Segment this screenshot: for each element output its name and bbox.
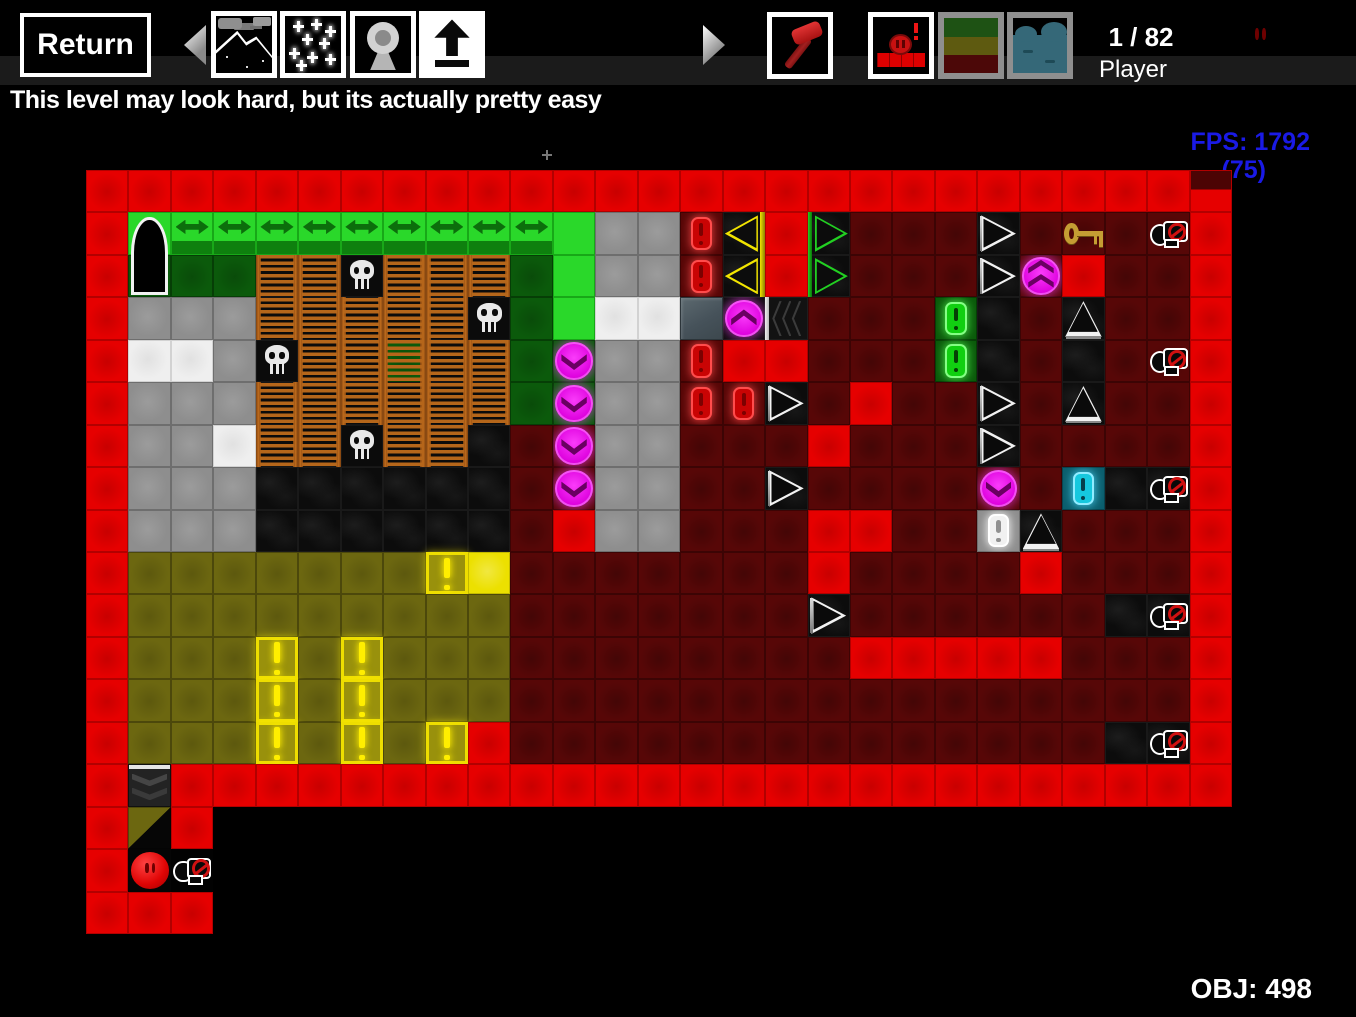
tile-red-block[interactable] xyxy=(553,170,595,212)
tile-dark-red-block[interactable] xyxy=(553,722,595,764)
tile-red-block[interactable] xyxy=(1190,425,1232,467)
tile-dark-red-block[interactable] xyxy=(808,722,850,764)
tile-red-block[interactable] xyxy=(1190,297,1232,339)
tile-white-block[interactable] xyxy=(171,340,213,382)
tile-white-block[interactable] xyxy=(595,297,637,339)
tile-olive-block[interactable] xyxy=(256,594,298,636)
tile-gray-block[interactable] xyxy=(128,425,170,467)
tile-dark-red-block[interactable] xyxy=(680,510,722,552)
tile-olive-block[interactable] xyxy=(426,594,468,636)
tile-ripple-door[interactable] xyxy=(765,297,807,339)
tile-ladder[interactable] xyxy=(256,425,298,467)
tile-red-block[interactable] xyxy=(850,637,892,679)
tile-olive-block[interactable] xyxy=(171,679,213,721)
tile-olive-block[interactable] xyxy=(383,594,425,636)
tile-red-block[interactable] xyxy=(595,170,637,212)
tile-gray-block[interactable] xyxy=(638,255,680,297)
tile-dark-red-block[interactable] xyxy=(765,425,807,467)
tile-ladder[interactable] xyxy=(256,255,298,297)
tile-gray-block[interactable] xyxy=(638,212,680,254)
tile-ladder[interactable] xyxy=(383,255,425,297)
tile-dark-red-block[interactable] xyxy=(510,552,552,594)
tile-gray-block[interactable] xyxy=(638,382,680,424)
tile-olive-block[interactable] xyxy=(213,679,255,721)
tile-gray-block[interactable] xyxy=(128,467,170,509)
tile-red-block[interactable] xyxy=(213,170,255,212)
tile-red-block[interactable] xyxy=(86,255,128,297)
tile-door-bottom[interactable] xyxy=(128,255,170,297)
tile-red-block[interactable] xyxy=(298,764,340,806)
tile-red-block[interactable] xyxy=(86,722,128,764)
tile-dark-red-block[interactable] xyxy=(595,722,637,764)
tile-red-block[interactable] xyxy=(1062,170,1104,212)
tile-cave-block[interactable] xyxy=(468,510,510,552)
tile-olive-block[interactable] xyxy=(468,594,510,636)
tile-yellow-bright-block[interactable] xyxy=(468,552,510,594)
preview-night-icon[interactable] xyxy=(211,11,277,78)
tile-red-block[interactable] xyxy=(383,170,425,212)
tile-olive-block[interactable] xyxy=(213,594,255,636)
return-button[interactable]: Return xyxy=(20,13,151,77)
tile-arrow-right-white[interactable] xyxy=(808,594,850,636)
tile-red-block[interactable] xyxy=(510,170,552,212)
tile-red-exclaim[interactable] xyxy=(680,255,722,297)
tile-red-block[interactable] xyxy=(553,510,595,552)
tile-gray-block[interactable] xyxy=(128,297,170,339)
tile-red-block[interactable] xyxy=(1190,552,1232,594)
tile-gray-block[interactable] xyxy=(595,340,637,382)
tile-cave-block[interactable] xyxy=(1105,722,1147,764)
tile-red-block[interactable] xyxy=(426,170,468,212)
tile-olive-block[interactable] xyxy=(128,679,170,721)
tile-gray-block[interactable] xyxy=(128,382,170,424)
tile-conveyor-arrow[interactable] xyxy=(256,212,298,254)
tile-red-block[interactable] xyxy=(765,212,807,254)
tile-red-block[interactable] xyxy=(1190,382,1232,424)
tile-dark-red-block[interactable] xyxy=(892,255,934,297)
tile-cave-block[interactable] xyxy=(468,425,510,467)
tile-spike-left-yellow[interactable] xyxy=(723,212,765,254)
tile-red-block[interactable] xyxy=(977,637,1019,679)
tile-dark-red-block[interactable] xyxy=(1105,297,1147,339)
tile-olive-block[interactable] xyxy=(383,552,425,594)
tile-gray-block[interactable] xyxy=(595,382,637,424)
tile-gray-block[interactable] xyxy=(171,467,213,509)
tile-olive-block[interactable] xyxy=(171,552,213,594)
tile-red-block[interactable] xyxy=(341,764,383,806)
tile-red-block[interactable] xyxy=(86,679,128,721)
tile-bomb-dispenser-red[interactable] xyxy=(1147,340,1189,382)
tile-teleport-down-red[interactable] xyxy=(553,467,595,509)
tile-arrow-up-white[interactable] xyxy=(1062,382,1104,424)
tile-dark-red-block[interactable] xyxy=(935,594,977,636)
tile-red-block[interactable] xyxy=(1105,764,1147,806)
tile-red-block[interactable] xyxy=(977,170,1019,212)
tile-dark-red-block[interactable] xyxy=(765,637,807,679)
tile-cave-block[interactable] xyxy=(468,467,510,509)
tile-dark-red-block[interactable] xyxy=(595,679,637,721)
tile-dark-red-block[interactable] xyxy=(1062,722,1104,764)
tile-dark-red-block[interactable] xyxy=(935,467,977,509)
tile-conveyor-arrow[interactable] xyxy=(298,212,340,254)
tile-dark-red-block[interactable] xyxy=(850,722,892,764)
tile-red-block[interactable] xyxy=(128,170,170,212)
tile-dark-red-block[interactable] xyxy=(808,679,850,721)
tile-dark-red-block[interactable] xyxy=(1062,552,1104,594)
tile-dark-red-block[interactable] xyxy=(680,637,722,679)
tile-bomb-dispenser-cave[interactable] xyxy=(1147,722,1189,764)
tile-cave-block[interactable] xyxy=(341,510,383,552)
tile-red-block[interactable] xyxy=(171,892,213,934)
tile-red-block[interactable] xyxy=(935,637,977,679)
tile-dark-red-block[interactable] xyxy=(553,679,595,721)
tile-cave-block[interactable] xyxy=(341,467,383,509)
tile-dark-red-block[interactable] xyxy=(1105,637,1147,679)
tile-red-block[interactable] xyxy=(1020,170,1062,212)
tile-dark-red-block[interactable] xyxy=(638,594,680,636)
tile-white-block[interactable] xyxy=(128,340,170,382)
tile-olive-block[interactable] xyxy=(383,722,425,764)
tile-olive-block[interactable] xyxy=(426,637,468,679)
tile-dark-red-block[interactable] xyxy=(850,552,892,594)
tile-dark-red-block[interactable] xyxy=(680,594,722,636)
tile-dark-red-block[interactable] xyxy=(892,679,934,721)
tile-dark-red-block[interactable] xyxy=(680,552,722,594)
tile-ladder[interactable] xyxy=(383,382,425,424)
preview-camera-icon[interactable] xyxy=(350,11,416,78)
tile-red-block[interactable] xyxy=(850,510,892,552)
tile-green-exclaim[interactable] xyxy=(935,340,977,382)
tile-dark-red-block[interactable] xyxy=(1105,340,1147,382)
tile-cyan-exclaim[interactable] xyxy=(1062,467,1104,509)
tile-dark-red-block[interactable] xyxy=(850,340,892,382)
tile-red-block[interactable] xyxy=(595,764,637,806)
tile-arrow-right-white[interactable] xyxy=(765,382,807,424)
tile-red-block[interactable] xyxy=(1020,637,1062,679)
tile-red-block[interactable] xyxy=(808,170,850,212)
tile-bomb-dispenser-red[interactable] xyxy=(1147,212,1189,254)
tile-dark-red-block[interactable] xyxy=(595,594,637,636)
tile-skull-block[interactable] xyxy=(341,255,383,297)
tile-dark-red-block[interactable] xyxy=(850,255,892,297)
tile-red-block[interactable] xyxy=(1105,170,1147,212)
tile-red-block[interactable] xyxy=(468,764,510,806)
tile-dark-red-block[interactable] xyxy=(892,594,934,636)
tile-dark-green-block[interactable] xyxy=(171,255,213,297)
tile-dark-red-block[interactable] xyxy=(1062,425,1104,467)
tile-dark-red-block[interactable] xyxy=(510,679,552,721)
tile-cave-block[interactable] xyxy=(1105,594,1147,636)
tile-dark-red-block[interactable] xyxy=(892,552,934,594)
tile-gray-block[interactable] xyxy=(595,212,637,254)
tile-red-block[interactable] xyxy=(808,764,850,806)
tile-ladder[interactable] xyxy=(298,255,340,297)
tile-arrow-right-white[interactable] xyxy=(977,255,1019,297)
tile-dark-red-block[interactable] xyxy=(510,510,552,552)
tile-dark-red-block[interactable] xyxy=(850,679,892,721)
tile-ladder[interactable] xyxy=(468,340,510,382)
tile-dark-red-block[interactable] xyxy=(935,722,977,764)
tile-red-exclaim[interactable] xyxy=(680,212,722,254)
tile-red-block-darktop[interactable] xyxy=(1190,170,1232,212)
tile-dark-red-block[interactable] xyxy=(510,467,552,509)
tile-gray-block[interactable] xyxy=(171,382,213,424)
tile-dark-red-block[interactable] xyxy=(1147,637,1189,679)
tile-dark-red-block[interactable] xyxy=(935,552,977,594)
tile-olive-block[interactable] xyxy=(383,637,425,679)
tile-skull-block[interactable] xyxy=(468,297,510,339)
tile-red-block[interactable] xyxy=(1062,255,1104,297)
tile-cave-block[interactable] xyxy=(977,340,1019,382)
player-block-tool-icon[interactable] xyxy=(868,12,934,79)
tile-red-block[interactable] xyxy=(553,764,595,806)
tile-arrow-right-white[interactable] xyxy=(977,382,1019,424)
tile-cave-block[interactable] xyxy=(426,510,468,552)
tile-olive-block[interactable] xyxy=(341,594,383,636)
tile-red-block[interactable] xyxy=(341,170,383,212)
tile-dark-red-block[interactable] xyxy=(723,679,765,721)
tile-spike-right-green[interactable] xyxy=(808,255,850,297)
tile-dark-red-block[interactable] xyxy=(892,297,934,339)
tile-dark-red-block[interactable] xyxy=(638,552,680,594)
tile-conveyor-arrow[interactable] xyxy=(171,212,213,254)
tile-red-block[interactable] xyxy=(86,467,128,509)
tile-dark-red-block[interactable] xyxy=(1105,552,1147,594)
tile-red-block[interactable] xyxy=(213,764,255,806)
tile-arrow-up-white[interactable] xyxy=(1020,510,1062,552)
tile-dark-red-block[interactable] xyxy=(1062,510,1104,552)
tile-conveyor-arrow[interactable] xyxy=(383,212,425,254)
tile-red-block[interactable] xyxy=(723,170,765,212)
tile-dark-red-block[interactable] xyxy=(1020,212,1062,254)
tile-gray-block[interactable] xyxy=(595,255,637,297)
tile-ladder[interactable] xyxy=(341,382,383,424)
tile-gray-block[interactable] xyxy=(638,425,680,467)
tile-gray-block[interactable] xyxy=(638,340,680,382)
tile-teleport-down-green[interactable] xyxy=(553,382,595,424)
tile-red-block[interactable] xyxy=(1190,722,1232,764)
tile-dark-red-block[interactable] xyxy=(638,722,680,764)
tile-dark-red-block[interactable] xyxy=(1020,297,1062,339)
tile-red-block[interactable] xyxy=(765,340,807,382)
tile-gray-block[interactable] xyxy=(171,425,213,467)
tile-red-block[interactable] xyxy=(1062,764,1104,806)
tile-gray-block[interactable] xyxy=(213,510,255,552)
tile-cave-block[interactable] xyxy=(256,467,298,509)
tile-dark-red-block[interactable] xyxy=(1147,510,1189,552)
tile-dark-red-block[interactable] xyxy=(935,382,977,424)
tile-gray-block[interactable] xyxy=(213,467,255,509)
tile-ladder[interactable] xyxy=(383,297,425,339)
tile-dark-red-block[interactable] xyxy=(553,637,595,679)
tile-dark-red-block[interactable] xyxy=(723,467,765,509)
tile-olive-block[interactable] xyxy=(171,594,213,636)
tile-dark-red-block[interactable] xyxy=(1147,382,1189,424)
tile-red-block[interactable] xyxy=(1190,255,1232,297)
tile-olive-block[interactable] xyxy=(468,679,510,721)
tile-dark-red-block[interactable] xyxy=(808,382,850,424)
tile-dark-red-block[interactable] xyxy=(1147,255,1189,297)
tile-red-block[interactable] xyxy=(86,340,128,382)
tile-olive-block[interactable] xyxy=(298,637,340,679)
tile-cave-block[interactable] xyxy=(1062,340,1104,382)
tile-dark-red-block[interactable] xyxy=(1062,594,1104,636)
tile-red-block[interactable] xyxy=(808,552,850,594)
tile-conveyor-arrow[interactable] xyxy=(468,212,510,254)
tile-red-block[interactable] xyxy=(638,764,680,806)
tile-ladder[interactable] xyxy=(298,425,340,467)
tile-dark-red-block[interactable] xyxy=(808,297,850,339)
tile-dark-red-block[interactable] xyxy=(1020,679,1062,721)
tile-red-block[interactable] xyxy=(298,170,340,212)
tile-gray-block[interactable] xyxy=(595,425,637,467)
tile-red-block[interactable] xyxy=(1190,340,1232,382)
tile-arrow-right-white[interactable] xyxy=(977,212,1019,254)
tile-dark-red-block[interactable] xyxy=(1105,212,1147,254)
tile-lime-block[interactable] xyxy=(553,297,595,339)
tile-dark-red-block[interactable] xyxy=(892,382,934,424)
tile-olive-block[interactable] xyxy=(171,637,213,679)
tile-dark-red-block[interactable] xyxy=(1020,722,1062,764)
tile-red-block[interactable] xyxy=(1190,594,1232,636)
tile-dark-red-block[interactable] xyxy=(1020,594,1062,636)
tile-red-block[interactable] xyxy=(935,764,977,806)
tile-lime-block[interactable] xyxy=(553,255,595,297)
tile-gray-block[interactable] xyxy=(213,297,255,339)
tile-gray-block[interactable] xyxy=(595,467,637,509)
tile-cave-block[interactable] xyxy=(383,467,425,509)
tile-yellow-exclaim[interactable] xyxy=(426,722,468,764)
tile-dark-red-block[interactable] xyxy=(892,510,934,552)
tile-dark-red-block[interactable] xyxy=(1105,679,1147,721)
tile-dark-red-block[interactable] xyxy=(723,722,765,764)
tile-player-ball[interactable] xyxy=(128,849,170,891)
tile-red-block[interactable] xyxy=(850,170,892,212)
tile-ladder[interactable] xyxy=(256,382,298,424)
tile-dark-red-block[interactable] xyxy=(892,340,934,382)
tile-dark-red-block[interactable] xyxy=(680,467,722,509)
tile-dark-red-block[interactable] xyxy=(765,552,807,594)
tile-white-block[interactable] xyxy=(638,297,680,339)
tile-white-exclaim[interactable] xyxy=(977,510,1019,552)
tile-dark-red-block[interactable] xyxy=(595,552,637,594)
tile-dark-red-block[interactable] xyxy=(935,255,977,297)
tile-olive-block[interactable] xyxy=(128,552,170,594)
tile-olive-block[interactable] xyxy=(341,552,383,594)
tile-cave-block[interactable] xyxy=(383,510,425,552)
tile-dark-red-block[interactable] xyxy=(977,552,1019,594)
tile-dark-red-block[interactable] xyxy=(808,340,850,382)
tile-dark-red-block[interactable] xyxy=(892,467,934,509)
tile-skull-block[interactable] xyxy=(256,340,298,382)
tile-red-block[interactable] xyxy=(1147,170,1189,212)
tile-dark-red-block[interactable] xyxy=(595,637,637,679)
tile-dark-red-block[interactable] xyxy=(850,297,892,339)
tile-olive-block[interactable] xyxy=(128,594,170,636)
tile-cave-block[interactable] xyxy=(256,510,298,552)
tile-red-block[interactable] xyxy=(86,594,128,636)
tile-red-block[interactable] xyxy=(680,764,722,806)
tile-dark-red-block[interactable] xyxy=(680,722,722,764)
tile-red-exclaim[interactable] xyxy=(680,340,722,382)
tile-yellow-exclaim[interactable] xyxy=(426,552,468,594)
tile-gray-block[interactable] xyxy=(595,510,637,552)
tile-red-block[interactable] xyxy=(86,510,128,552)
tile-olive-diagonal[interactable] xyxy=(128,807,170,849)
tile-dark-red-block[interactable] xyxy=(1062,637,1104,679)
tile-dark-green-block[interactable] xyxy=(510,255,552,297)
tile-spike-right-green[interactable] xyxy=(808,212,850,254)
tile-red-exclaim[interactable] xyxy=(680,382,722,424)
tile-gray-block[interactable] xyxy=(213,382,255,424)
tile-dark-red-block[interactable] xyxy=(935,510,977,552)
tile-red-block[interactable] xyxy=(171,170,213,212)
tile-ladder[interactable] xyxy=(256,297,298,339)
tile-red-block[interactable] xyxy=(808,510,850,552)
tile-dark-green-block[interactable] xyxy=(213,255,255,297)
tile-conveyor-arrow[interactable] xyxy=(510,212,552,254)
tile-olive-block[interactable] xyxy=(298,552,340,594)
tile-red-block[interactable] xyxy=(765,255,807,297)
tile-dark-red-block[interactable] xyxy=(1105,382,1147,424)
tile-red-block[interactable] xyxy=(723,764,765,806)
tile-dark-red-block[interactable] xyxy=(510,637,552,679)
tile-dark-red-block[interactable] xyxy=(892,425,934,467)
tile-skull-block[interactable] xyxy=(341,425,383,467)
tile-red-block[interactable] xyxy=(1020,552,1062,594)
tile-ladder[interactable] xyxy=(426,255,468,297)
tile-dark-red-block[interactable] xyxy=(1147,297,1189,339)
tile-dark-red-block[interactable] xyxy=(892,722,934,764)
tile-teleport-down-red[interactable] xyxy=(553,425,595,467)
tile-red-block[interactable] xyxy=(1190,212,1232,254)
tile-red-block[interactable] xyxy=(808,425,850,467)
tile-dark-red-block[interactable] xyxy=(1020,340,1062,382)
tile-crusher-chevron[interactable] xyxy=(128,764,170,806)
tile-arrow-up-white[interactable] xyxy=(1062,297,1104,339)
tile-dark-red-block[interactable] xyxy=(723,510,765,552)
tile-dark-red-block[interactable] xyxy=(977,594,1019,636)
tile-gray-block[interactable] xyxy=(638,467,680,509)
tile-cave-block[interactable] xyxy=(977,297,1019,339)
tile-dark-red-block[interactable] xyxy=(765,679,807,721)
tile-olive-block[interactable] xyxy=(468,637,510,679)
tile-red-block[interactable] xyxy=(850,382,892,424)
tile-olive-block[interactable] xyxy=(213,722,255,764)
tile-dark-green-block[interactable] xyxy=(510,297,552,339)
tile-white-block[interactable] xyxy=(213,425,255,467)
tile-red-block[interactable] xyxy=(935,170,977,212)
tile-ladder-green[interactable] xyxy=(383,340,425,382)
tile-red-block[interactable] xyxy=(1020,764,1062,806)
tile-dark-red-block[interactable] xyxy=(1105,510,1147,552)
tile-ladder[interactable] xyxy=(298,297,340,339)
tile-olive-block[interactable] xyxy=(298,594,340,636)
tile-olive-block[interactable] xyxy=(171,722,213,764)
tile-dark-red-block[interactable] xyxy=(510,425,552,467)
tile-ladder[interactable] xyxy=(298,340,340,382)
tile-yellow-exclaim[interactable] xyxy=(341,679,383,721)
tile-dark-red-block[interactable] xyxy=(723,637,765,679)
tile-red-block[interactable] xyxy=(510,764,552,806)
tile-red-block[interactable] xyxy=(892,170,934,212)
tile-dark-red-block[interactable] xyxy=(1147,552,1189,594)
tile-olive-block[interactable] xyxy=(383,679,425,721)
tile-dark-red-block[interactable] xyxy=(892,212,934,254)
tile-ladder[interactable] xyxy=(426,425,468,467)
tile-teleport-down-green[interactable] xyxy=(553,340,595,382)
tile-dark-red-block[interactable] xyxy=(850,594,892,636)
